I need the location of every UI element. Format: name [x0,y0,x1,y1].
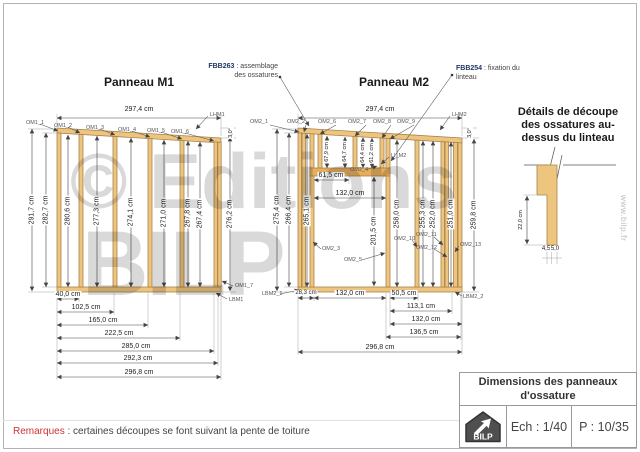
m1-stud [113,137,117,288]
stud-label: OM2_6 [318,119,336,125]
callout-fbb263: FBB263 : assemblage des ossatures [193,62,278,81]
leader-line [216,293,227,299]
plate-label: LHM2 [452,112,467,118]
angle-label: 3,0° [467,127,473,139]
dim-label: 280,6 cm [65,196,72,227]
dim-label: 296,8 cm [365,344,396,351]
detail-title: Détails de découpe des ossatures au- des… [498,106,638,146]
dim-label: 5,0 [550,246,560,252]
m2-stud [441,142,445,287]
callout-fbb254: FBB254 : fixation du linteau [456,64,536,83]
dim-label: 252,0 cm [430,199,437,230]
dim-label: 292,3 cm [123,355,154,362]
drawing-sheet: © Editions BILP www.bilp.fr [0,0,640,452]
dim-label: 255,3 cm [420,199,427,230]
bilp-logo: BILP [460,406,507,447]
m2-stud [415,140,419,287]
bilp-logo-icon: BILP [464,410,502,444]
stud-label: OM2_12 [416,245,437,251]
m1-stud [57,133,61,287]
dim-label: 251,0 cm [448,199,455,230]
leader-line [270,125,299,132]
callout-code: FBB254 [456,65,482,72]
panel-m2-title: Panneau M2 [344,75,444,89]
dim-label: 28,3 cm [294,290,317,296]
dim-label: 259,8 cm [471,200,478,231]
dim-label: 222,5 cm [104,330,135,337]
stud-label: OM2_7 [348,119,366,125]
m2-stud [458,143,462,287]
remarks: Remarques : certaines découpes se font s… [13,426,310,437]
stud-label: OM2_8 [373,119,391,125]
m2-cripple-stud [353,136,357,168]
dim-label: 291,7 cm [29,195,36,226]
stud-label: OM1_2 [54,123,72,129]
dim-label: 113,1 cm [406,303,436,310]
dim-label: 296,8 cm [124,369,155,376]
m2-stud [310,134,314,287]
stud-label: OM2_11 [416,232,437,238]
m2-stud [386,138,390,287]
dim-label: 61,2 cm [369,142,375,164]
m2-bottom-plate [298,287,462,292]
stud-label: OM1_7 [235,283,253,289]
m1-bottom-plate [57,287,221,292]
remarks-label: Remarques [13,426,65,437]
leader-line [362,253,385,260]
stud-label: OM1_3 [86,125,104,131]
title-block: Dimensions des panneaux d'ossature BILP … [459,372,637,448]
lintel-label: LI_M2 [391,153,406,159]
stud-label: OM1_6 [171,129,189,135]
stud-label: OM1_5 [147,128,165,134]
dim-label: 201,5 cm [371,216,378,247]
dim-label: 64,4 cm [360,142,366,164]
website-watermark: www.bilp.fr [619,195,629,242]
m1-stud [180,141,184,288]
stud-label: OM2_2 [287,119,305,125]
dim-label: 265,1 cm [304,196,311,227]
m1-stud [218,142,221,287]
title-block-title: Dimensions des panneaux d'ossature [460,373,636,406]
dim-label: 276,2 cm [227,199,234,230]
dim-label: 297,4 cm [124,106,155,113]
lintel-detail-drawing [524,147,616,264]
stud-label: OM2_10 [394,236,415,242]
dim-label: 61,5 cm [318,172,345,179]
dim-label: 275,4 cm [274,195,281,226]
bilp-logo-text: BILP [473,431,493,441]
m1-stud [79,135,83,288]
callout-code: FBB263 [208,63,234,70]
dim-label: 285,0 cm [121,343,152,350]
dim-label: 64,7 cm [342,141,348,163]
dim-label: 132,0 cm [335,290,366,297]
dim-label: 132,0 cm [335,190,366,197]
dim-label: 165,0 cm [88,317,119,324]
panel-m1-title: Panneau M1 [89,75,189,89]
dim-label: 282,7 cm [43,195,50,226]
m2-cripple-stud [318,134,322,168]
m1-stud [148,139,152,288]
stud-label: OM2_3 [322,246,340,252]
m2-cripple-stud [380,138,384,168]
dim-label: 102,5 cm [71,304,102,311]
dim-label: 136,5 cm [409,329,440,336]
dim-label: 266,4 cm [286,195,293,226]
stud-label: OM2_13 [460,242,481,248]
panel-m1-drawing [28,114,236,380]
plate-label: LBM2_1 [262,291,283,297]
dim-label: 274,1 cm [128,197,135,228]
dim-label: 277,3 cm [94,196,101,227]
dim-label: 50,5 cm [391,290,418,297]
m2-stud [298,133,302,287]
angle-label: 3,0° [228,127,234,139]
leader-line [222,281,233,286]
detail-cut-stud [537,165,557,245]
dim-label: 22,0 cm [518,209,524,231]
dim-label: 267,8 cm [185,198,192,229]
stud-label: OM2_4 [350,167,368,173]
stud-label: OM1_4 [118,127,136,133]
m1-stud [214,142,218,287]
dim-label: 67,9 cm [324,141,330,163]
stud-label: OM2_9 [397,119,415,125]
dim-label: 132,0 cm [411,316,442,323]
dim-label: 40,0 cm [55,291,82,298]
plate-label: LBM1 [229,297,243,303]
stud-label: OM2_5 [344,257,362,263]
stud-label: OM2_1 [250,119,268,125]
plate-label: LBM2_2 [463,294,484,300]
dim-label: 297,4 cm [365,106,396,113]
scale-value: Ech : 1/40 [507,406,572,447]
plate-label: LHM1 [210,112,225,118]
dim-label: 271,0 cm [161,198,168,229]
page-number: P : 10/35 [572,406,636,447]
dim-label: 267,4 cm [197,199,204,230]
stud-label: OM1_1 [26,120,44,126]
dim-label: 258,0 cm [394,199,401,230]
